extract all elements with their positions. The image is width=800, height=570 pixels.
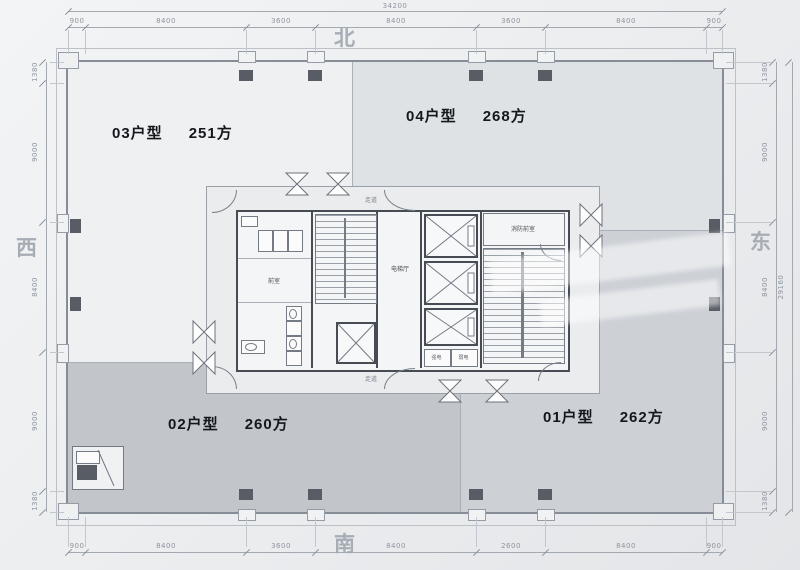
sink-counter [241, 216, 258, 227]
pilaster-bottom-1 [238, 509, 256, 521]
dim-left-seg: 1380 [31, 477, 41, 525]
elevator-1 [424, 214, 478, 258]
dim-extension-line [246, 30, 247, 54]
dim-top-seg: 8400 [374, 17, 418, 25]
dim-left-seg: 9000 [31, 397, 41, 445]
dim-extension-line [726, 222, 772, 223]
dim-extension-line [315, 30, 316, 54]
dim-bottom-seg: 900 [55, 542, 99, 550]
stair-left [315, 214, 377, 304]
washroom-divider [238, 258, 311, 259]
dim-line-top-total [68, 11, 722, 12]
dim-extension-line [726, 352, 772, 353]
dim-top-seg: 8400 [144, 17, 188, 25]
dim-extension-line [85, 517, 86, 547]
compass-west: 西 [16, 232, 37, 262]
corner-block-tl [58, 52, 79, 69]
dim-line-bottom [68, 552, 722, 553]
stall-partition [258, 230, 273, 252]
weak-power-label: 弱电 [451, 354, 476, 361]
dim-extension-line [726, 491, 772, 492]
utility-chute-line [96, 448, 118, 488]
dim-extension-line [726, 62, 772, 63]
unit-01-label: 01户型262方 [543, 406, 664, 427]
column [469, 489, 483, 500]
dim-right-seg: 1380 [761, 477, 771, 525]
stall-partition [273, 230, 288, 252]
dim-right-seg: 8400 [761, 263, 771, 311]
double-door-icon [438, 379, 462, 403]
fire-lobby-label: 消防前室 [491, 224, 555, 233]
column [308, 489, 322, 500]
pilaster-left-1 [57, 214, 69, 233]
dim-tick [39, 219, 46, 226]
column [709, 219, 720, 233]
column [239, 70, 253, 81]
unit-04-name: 04户型 [406, 108, 457, 125]
dim-extension-line [50, 222, 64, 223]
double-door-icon [192, 351, 216, 375]
dim-tick [719, 8, 726, 15]
compass-south: 南 [334, 528, 355, 558]
dim-extension-line [68, 30, 69, 54]
dim-top-seg: 3600 [489, 17, 533, 25]
dim-bottom-seg: 8400 [144, 542, 188, 550]
vestibule-label: 前室 [258, 276, 290, 285]
utility-dark-block [77, 465, 97, 480]
corridor-top-label: 走道 [356, 195, 386, 204]
double-door-icon [285, 172, 309, 196]
dim-bottom-seg: 3600 [259, 542, 303, 550]
unit-02-label: 02户型260方 [168, 413, 289, 434]
stall-partition [286, 351, 302, 366]
dim-extension-line [545, 517, 546, 547]
unit-02-area: 260方 [245, 416, 289, 433]
pilaster-bottom-4 [537, 509, 555, 521]
washroom-divider [238, 302, 311, 303]
column [70, 297, 81, 311]
stair-left-rail [344, 218, 346, 298]
column [70, 219, 81, 233]
party-wall-02-01 [460, 392, 461, 512]
pilaster-right-1 [723, 214, 735, 233]
dim-tick [719, 549, 726, 556]
dim-tick [785, 59, 792, 66]
dim-bottom-seg: 8400 [604, 542, 648, 550]
unit-01-name: 01户型 [543, 409, 594, 426]
pilaster-left-2 [57, 344, 69, 363]
dim-right-seg: 1380 [761, 48, 771, 96]
compass-east: 东 [750, 226, 771, 256]
dim-top-total: 34200 [373, 2, 417, 10]
dim-line-left [46, 62, 47, 512]
party-wall-03-02 [68, 362, 206, 363]
pilaster-bottom-3 [468, 509, 486, 521]
pilaster-top-4 [537, 51, 555, 63]
toilet-fixture [289, 309, 297, 319]
dim-line-right-total [792, 62, 793, 512]
dim-extension-line [50, 83, 64, 84]
dim-line-top [68, 27, 722, 28]
dim-right-seg: 9000 [761, 128, 771, 176]
dim-extension-line [726, 83, 772, 84]
dim-top-seg: 900 [692, 17, 736, 25]
corner-block-tr [713, 52, 734, 69]
stall-partition [288, 230, 303, 252]
dim-extension-line [726, 512, 772, 513]
core-partition [420, 212, 422, 368]
pilaster-bottom-2 [307, 509, 325, 521]
corridor-bottom-label: 走道 [356, 374, 386, 383]
floor-plan-canvas: 前室 电梯厅 强电 弱电 消防前室 走道 走道 [0, 0, 800, 570]
dim-bottom-seg: 2600 [489, 542, 533, 550]
unit-03-area: 251方 [189, 125, 233, 142]
dim-extension-line [545, 30, 546, 54]
dim-extension-line [50, 512, 64, 513]
dim-extension-line [315, 517, 316, 547]
double-door-icon [326, 172, 350, 196]
party-wall-03-04 [352, 62, 353, 186]
dim-right-total: 29160 [777, 263, 787, 311]
column [469, 70, 483, 81]
core-partition [480, 212, 482, 368]
unit-04-area: 268方 [483, 108, 527, 125]
dim-extension-line [722, 30, 723, 54]
double-door-icon [485, 379, 509, 403]
dim-extension-line [85, 30, 86, 54]
dim-bottom-seg: 900 [692, 542, 736, 550]
dim-tick [39, 349, 46, 356]
dim-left-seg: 8400 [31, 263, 41, 311]
toilet-fixture [289, 339, 297, 349]
dim-right-seg: 9000 [761, 397, 771, 445]
dim-extension-line [50, 352, 64, 353]
dim-extension-line [722, 517, 723, 547]
unit-04-label: 04户型268方 [406, 105, 527, 126]
dim-extension-line [476, 30, 477, 54]
pilaster-top-1 [238, 51, 256, 63]
service-elevator [336, 322, 376, 364]
pilaster-top-3 [468, 51, 486, 63]
elevator-3 [424, 308, 478, 346]
core-partition [311, 212, 313, 368]
pilaster-top-2 [307, 51, 325, 63]
dim-extension-line [476, 517, 477, 547]
double-door-icon [192, 320, 216, 344]
elevator-hall-label: 电梯厅 [379, 264, 421, 273]
column [538, 70, 552, 81]
unit-03-label: 03户型251方 [112, 122, 233, 143]
double-door-icon [579, 203, 603, 227]
stall-partition [286, 321, 302, 336]
dim-top-seg: 3600 [259, 17, 303, 25]
dim-extension-line [68, 517, 69, 547]
strong-power-label: 强电 [424, 354, 449, 361]
dim-bottom-seg: 8400 [374, 542, 418, 550]
dim-top-seg: 900 [55, 17, 99, 25]
dim-extension-line [50, 62, 64, 63]
dim-extension-line [50, 491, 64, 492]
unit-03-name: 03户型 [112, 125, 163, 142]
dim-extension-line [246, 517, 247, 547]
column [308, 70, 322, 81]
elevator-2 [424, 261, 478, 305]
pilaster-right-2 [723, 344, 735, 363]
dim-left-seg: 1380 [31, 48, 41, 96]
dim-top-seg: 8400 [604, 17, 648, 25]
unit-02-name: 02户型 [168, 416, 219, 433]
dim-tick [785, 509, 792, 516]
sink-fixture [245, 343, 257, 351]
column [538, 489, 552, 500]
unit-01-area: 262方 [620, 409, 664, 426]
dim-extension-line [706, 517, 707, 547]
dim-extension-line [706, 30, 707, 54]
column [239, 489, 253, 500]
dim-left-seg: 9000 [31, 128, 41, 176]
party-wall-04-01 [598, 230, 722, 231]
